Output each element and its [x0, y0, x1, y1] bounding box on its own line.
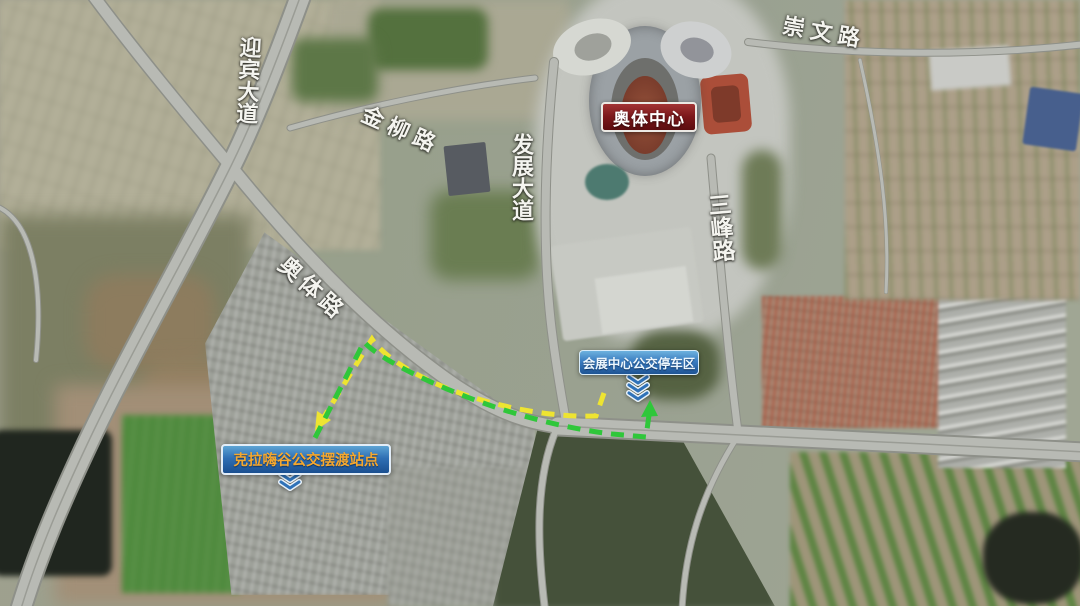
road-label-yingbin-avenue: 迎宾大道	[229, 35, 266, 125]
shuttle-station-label-text: 克拉嗨谷公交摆渡站点	[234, 449, 379, 470]
stadium-label-text: 奥体中心	[613, 105, 685, 130]
shuttle-station-label: 克拉嗨谷公交摆渡站点	[221, 444, 391, 475]
satellite-map: 迎宾大道 金柳路 发展大道 崇文路 三峰路 奥体路 奥体中心 会展中心公交停车区…	[0, 0, 1080, 606]
road-label-fazhan-avenue: 发展大道	[505, 133, 537, 221]
yellow-route-path	[322, 339, 604, 420]
stadium-label: 奥体中心	[601, 102, 697, 132]
routes-layer	[0, 0, 1080, 606]
bus-parking-label: 会展中心公交停车区	[579, 350, 699, 375]
road-label-sanfeng-road: 三峰路	[700, 192, 740, 264]
bus-parking-label-text: 会展中心公交停车区	[583, 353, 696, 372]
chevron-down-icon	[624, 373, 652, 403]
